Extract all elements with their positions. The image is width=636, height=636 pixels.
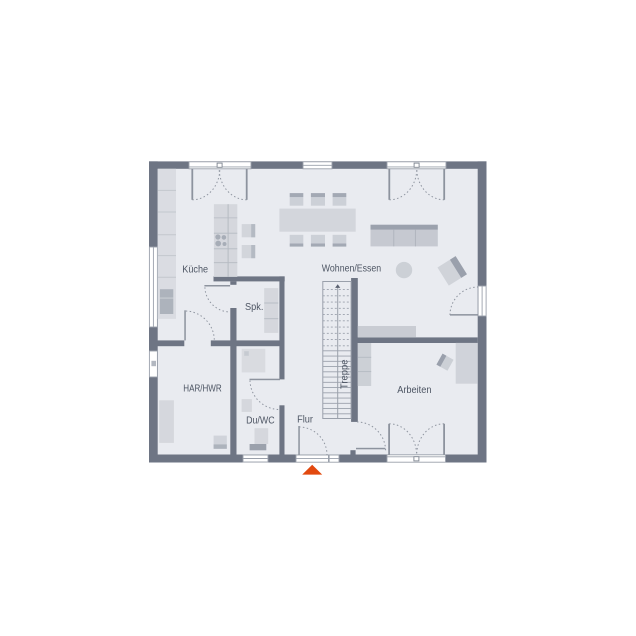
svg-text:Flur: Flur: [297, 414, 313, 425]
svg-text:Spk.: Spk.: [245, 302, 263, 313]
svg-text:Küche: Küche: [182, 264, 208, 275]
svg-text:HAR/HWR: HAR/HWR: [183, 384, 221, 395]
svg-text:Wohnen/Essen: Wohnen/Essen: [322, 264, 382, 275]
svg-text:Treppe: Treppe: [340, 359, 351, 389]
svg-text:Arbeiten: Arbeiten: [397, 385, 432, 396]
svg-text:Du/WC: Du/WC: [246, 416, 275, 427]
